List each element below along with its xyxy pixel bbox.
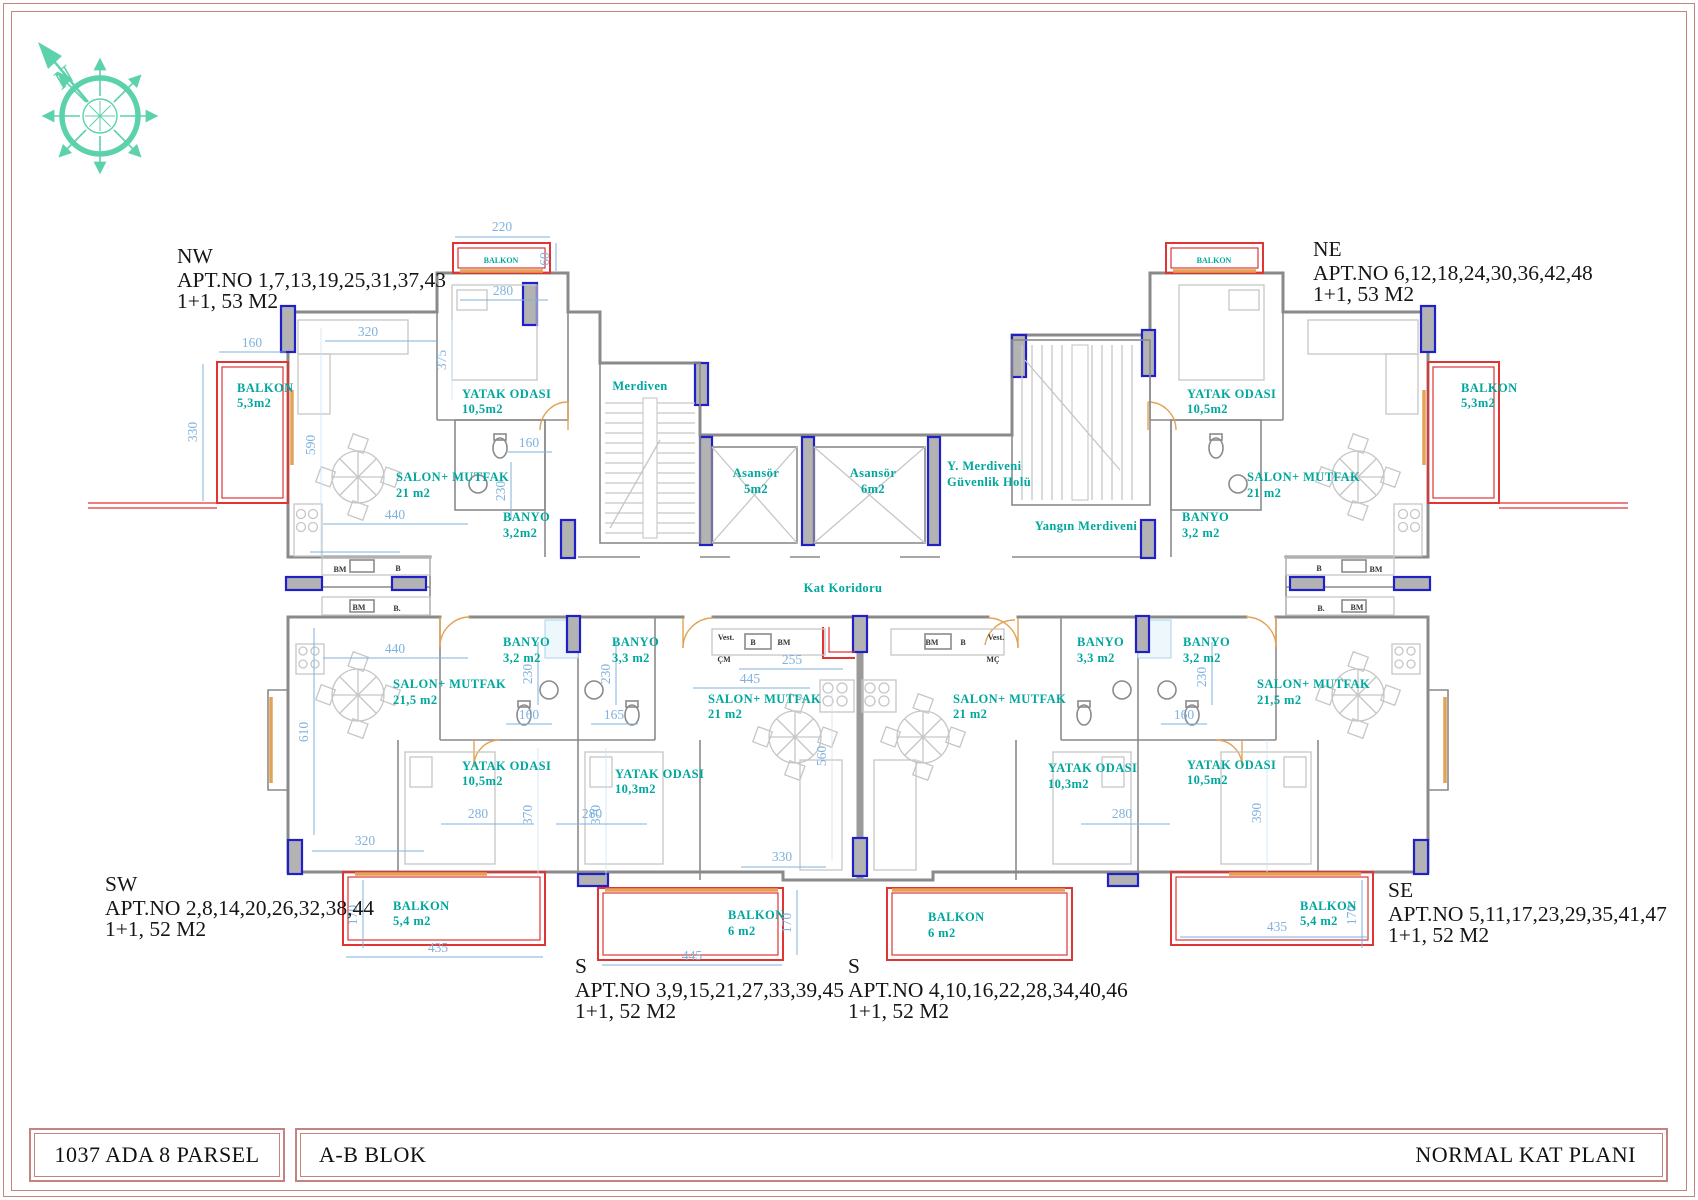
svg-text:NE: NE bbox=[1313, 237, 1342, 261]
room-label-balkon-s2: BALKON bbox=[928, 910, 985, 924]
room-label-yatak-odasi-nw: YATAK ODASI bbox=[462, 387, 551, 401]
svg-text:1+1, 53 M2: 1+1, 53 M2 bbox=[177, 289, 278, 313]
room-label-yangin: Yangın Merdiveni bbox=[1035, 519, 1138, 533]
svg-text:435: 435 bbox=[1267, 919, 1288, 934]
room-label-yatak-odasi-sw: YATAK ODASI bbox=[462, 759, 551, 773]
room-area: 5m2 bbox=[744, 482, 768, 496]
svg-text:165: 165 bbox=[604, 707, 625, 722]
room-label-b-ne: B bbox=[1316, 564, 1322, 573]
room-area: 21 m2 bbox=[1247, 486, 1281, 500]
dimension: 590 bbox=[303, 328, 321, 555]
svg-text:1+1, 52 M2: 1+1, 52 M2 bbox=[575, 999, 676, 1023]
dimension: 445 bbox=[693, 671, 810, 688]
room-area: 5,3m2 bbox=[1461, 396, 1495, 410]
room-label-salon-sw: SALON+ MUTFAK bbox=[393, 677, 506, 691]
apartment-annotation-s2: S APT.NO 4,10,16,22,28,34,40,46 1+1, 52 … bbox=[848, 954, 1128, 1023]
dimension: 330 bbox=[741, 849, 826, 867]
svg-text:1+1, 53 M2: 1+1, 53 M2 bbox=[1313, 282, 1414, 306]
room-label-b-s2: B bbox=[960, 638, 966, 647]
svg-text:330: 330 bbox=[772, 849, 793, 864]
svg-text:230: 230 bbox=[520, 664, 535, 685]
room-label-bm-sw: BM bbox=[353, 603, 366, 612]
parcel-label: 1037 ADA 8 PARSEL bbox=[54, 1142, 259, 1168]
svg-text:160: 160 bbox=[1174, 707, 1195, 722]
block-label: A-B BLOK bbox=[319, 1142, 426, 1168]
dimension: 330 bbox=[185, 364, 203, 501]
svg-text:SE: SE bbox=[1388, 878, 1413, 902]
svg-text:445: 445 bbox=[682, 948, 703, 963]
room-label-banyo-se: BANYO bbox=[1183, 635, 1230, 649]
room-label-bm-nw: BM bbox=[334, 565, 347, 574]
room-area: 3,2m2 bbox=[503, 526, 537, 540]
svg-text:280: 280 bbox=[493, 283, 514, 298]
dimension: 435 bbox=[346, 940, 543, 957]
dimension: 160 bbox=[219, 335, 286, 352]
room-label-b-s1: B bbox=[750, 638, 756, 647]
room-label-balkon-sw: BALKON bbox=[393, 899, 450, 913]
room-label-salon-s2: SALON+ MUTFAK bbox=[953, 692, 1066, 706]
dimension: 445 bbox=[602, 948, 782, 965]
room-area: 5,3m2 bbox=[237, 396, 271, 410]
room-area: 10,3m2 bbox=[615, 782, 656, 796]
svg-text:560: 560 bbox=[814, 746, 829, 767]
dimension: 60 bbox=[537, 243, 556, 271]
dimension: 320 bbox=[312, 833, 424, 851]
room-labels: YATAK ODASI 10,5m2 SALON+ MUTFAK 21 m2 B… bbox=[237, 256, 1518, 940]
room-label-asansor-1: Asansör bbox=[733, 466, 780, 480]
room-label-banyo-ne: BANYO bbox=[1182, 510, 1229, 524]
room-label-yatak-odasi-s2: YATAK ODASI bbox=[1048, 761, 1137, 775]
room-label-vest-s1: Vest. bbox=[718, 633, 734, 642]
svg-text:1+1, 52 M2: 1+1, 52 M2 bbox=[848, 999, 949, 1023]
room-area: 21 m2 bbox=[396, 486, 430, 500]
room-label-kat-koridoru: Kat Koridoru bbox=[804, 581, 883, 595]
svg-text:1+1, 52 M2: 1+1, 52 M2 bbox=[1388, 923, 1489, 947]
room-label-salon-s1: SALON+ MUTFAK bbox=[708, 692, 821, 706]
room-area: 21 m2 bbox=[708, 707, 742, 721]
svg-text:255: 255 bbox=[782, 652, 803, 667]
dimension: 440 bbox=[323, 507, 468, 524]
room-label-salon-se: SALON+ MUTFAK bbox=[1257, 677, 1370, 691]
room-label-yatak-odasi-se: YATAK ODASI bbox=[1187, 758, 1276, 772]
room-label-b-nw: B bbox=[395, 564, 401, 573]
room-label-merdiven: Merdiven bbox=[612, 379, 667, 393]
room-label-mc-s2: MÇ bbox=[986, 655, 1000, 664]
dimension: 320 bbox=[325, 324, 438, 341]
svg-text:NW: NW bbox=[177, 244, 214, 268]
apartment-annotation-ne: NE APT.NO 6,12,18,24,30,36,42,48 1+1, 53… bbox=[1313, 237, 1593, 306]
dimension: 280 bbox=[1081, 806, 1170, 824]
room-label-bm-se: BM bbox=[1351, 603, 1364, 612]
room-label-yatak-odasi-ne: YATAK ODASI bbox=[1187, 387, 1276, 401]
room-area: 3,2 m2 bbox=[1183, 651, 1221, 665]
dimension: 160 bbox=[1161, 707, 1207, 724]
room-area: 10,5m2 bbox=[462, 402, 503, 416]
room-label-asansor-2: Asansör bbox=[850, 466, 897, 480]
svg-text:60: 60 bbox=[537, 252, 552, 266]
room-label-balkon-top-right: BALKON bbox=[1197, 256, 1232, 265]
svg-text:S: S bbox=[575, 954, 587, 978]
room-area: 10,3m2 bbox=[1048, 777, 1089, 791]
room-area: 5,4 m2 bbox=[393, 914, 431, 928]
apartment-annotation-sw: SW APT.NO 2,8,14,20,26,32,38,44 1+1, 52 … bbox=[105, 872, 374, 941]
svg-text:220: 220 bbox=[492, 219, 513, 234]
apartment-annotation-nw: NW APT.NO 1,7,13,19,25,31,37,43 1+1, 53 … bbox=[177, 244, 446, 313]
room-label-salon-ne: SALON+ MUTFAK bbox=[1247, 470, 1360, 484]
room-label-bm-s1: BM bbox=[778, 638, 791, 647]
svg-text:S: S bbox=[848, 954, 860, 978]
svg-text:SW: SW bbox=[105, 872, 138, 896]
svg-text:280: 280 bbox=[582, 806, 603, 821]
floor-plan-canvas: N bbox=[0, 0, 1698, 1200]
room-area: 6 m2 bbox=[928, 926, 956, 940]
svg-text:370: 370 bbox=[520, 805, 535, 826]
room-label-cm-s1: ÇM bbox=[717, 655, 731, 664]
room-label-bdot-se: B. bbox=[1317, 604, 1324, 613]
svg-text:440: 440 bbox=[385, 507, 406, 522]
room-label-vest-s2: Vest. bbox=[988, 633, 1004, 642]
room-label-balkon-s1: BALKON bbox=[728, 908, 785, 922]
room-area: 10,5m2 bbox=[1187, 773, 1228, 787]
svg-text:390: 390 bbox=[1249, 803, 1264, 824]
svg-text:160: 160 bbox=[519, 435, 540, 450]
room-label-banyo-s2: BANYO bbox=[1077, 635, 1124, 649]
room-label-banyo-nw: BANYO bbox=[503, 510, 550, 524]
room-area: 3,2 m2 bbox=[1182, 526, 1220, 540]
room-area: 21,5 m2 bbox=[1257, 693, 1301, 707]
svg-text:280: 280 bbox=[468, 806, 489, 821]
svg-text:280: 280 bbox=[1112, 806, 1133, 821]
svg-text:320: 320 bbox=[358, 324, 379, 339]
svg-text:1+1, 52 M2: 1+1, 52 M2 bbox=[105, 917, 206, 941]
room-area: 3,3 m2 bbox=[612, 651, 650, 665]
dimension: 160 bbox=[506, 707, 552, 724]
svg-text:230: 230 bbox=[1194, 667, 1209, 688]
svg-text:435: 435 bbox=[428, 940, 449, 955]
plan-title: NORMAL KAT PLANI bbox=[1415, 1142, 1636, 1168]
room-area: 3,2 m2 bbox=[503, 651, 541, 665]
title-box-parcel: 1037 ADA 8 PARSEL bbox=[29, 1128, 285, 1182]
room-label-balkon-top-left: BALKON bbox=[484, 256, 519, 265]
room-area: 21 m2 bbox=[953, 707, 987, 721]
svg-text:330: 330 bbox=[185, 422, 200, 443]
room-area: 6m2 bbox=[861, 482, 885, 496]
room-label-bm-s2: BM bbox=[926, 638, 939, 647]
room-label-bm-ne: BM bbox=[1370, 565, 1383, 574]
room-label-balkon-nw: BALKON bbox=[237, 381, 294, 395]
room-label-banyo-sw1: BANYO bbox=[503, 635, 550, 649]
svg-text:160: 160 bbox=[242, 335, 263, 350]
dimension: 170 bbox=[779, 890, 797, 955]
svg-text:320: 320 bbox=[355, 833, 376, 848]
compass-rose: N bbox=[38, 42, 152, 168]
dimension: 435 bbox=[1180, 919, 1368, 937]
svg-text:230: 230 bbox=[598, 664, 613, 685]
dimensions: 220 60 280 160 330 590 320 375 440 230 1… bbox=[185, 219, 1368, 965]
apartment-annotation-se: SE APT.NO 5,11,17,23,29,35,41,47 1+1, 52… bbox=[1388, 878, 1667, 947]
room-label-balkon-ne: BALKON bbox=[1461, 381, 1518, 395]
svg-text:610: 610 bbox=[296, 722, 311, 743]
svg-text:445: 445 bbox=[740, 671, 761, 686]
dimension: 165 bbox=[591, 707, 638, 724]
room-label-balkon-se: BALKON bbox=[1300, 899, 1357, 913]
dimension: 560 bbox=[814, 692, 832, 860]
room-label-yatak-odasi-s1: YATAK ODASI bbox=[615, 767, 704, 781]
dimension: 610 bbox=[296, 628, 314, 835]
room-label-guvenlik-2: Güvenlik Holü bbox=[947, 475, 1031, 489]
apartment-annotation-s1: S APT.NO 3,9,15,21,27,33,39,45 1+1, 52 M… bbox=[575, 954, 844, 1023]
dimension: 220 bbox=[455, 219, 550, 237]
dimension: 170 bbox=[1344, 880, 1362, 948]
svg-text:375: 375 bbox=[434, 350, 449, 371]
room-label-salon-nw: SALON+ MUTFAK bbox=[396, 470, 509, 484]
room-area: 10,5m2 bbox=[1187, 402, 1228, 416]
title-box-block: A-B BLOK NORMAL KAT PLANI bbox=[295, 1128, 1668, 1182]
floor-plan-page: N bbox=[0, 0, 1698, 1200]
svg-text:160: 160 bbox=[519, 707, 540, 722]
room-area: 10,5m2 bbox=[462, 774, 503, 788]
room-area: 3,3 m2 bbox=[1077, 651, 1115, 665]
room-area: 5,4 m2 bbox=[1300, 914, 1338, 928]
room-label-bdot-sw: B. bbox=[393, 604, 400, 613]
room-label-banyo-s1: BANYO bbox=[612, 635, 659, 649]
room-area: 6 m2 bbox=[728, 924, 756, 938]
dimension: 440 bbox=[323, 641, 468, 658]
stairs-yangin bbox=[1012, 340, 1150, 505]
svg-text:590: 590 bbox=[303, 435, 318, 456]
room-area: 21,5 m2 bbox=[393, 693, 437, 707]
room-label-guvenlik-1: Y. Merdiveni bbox=[947, 459, 1022, 473]
svg-text:440: 440 bbox=[385, 641, 406, 656]
